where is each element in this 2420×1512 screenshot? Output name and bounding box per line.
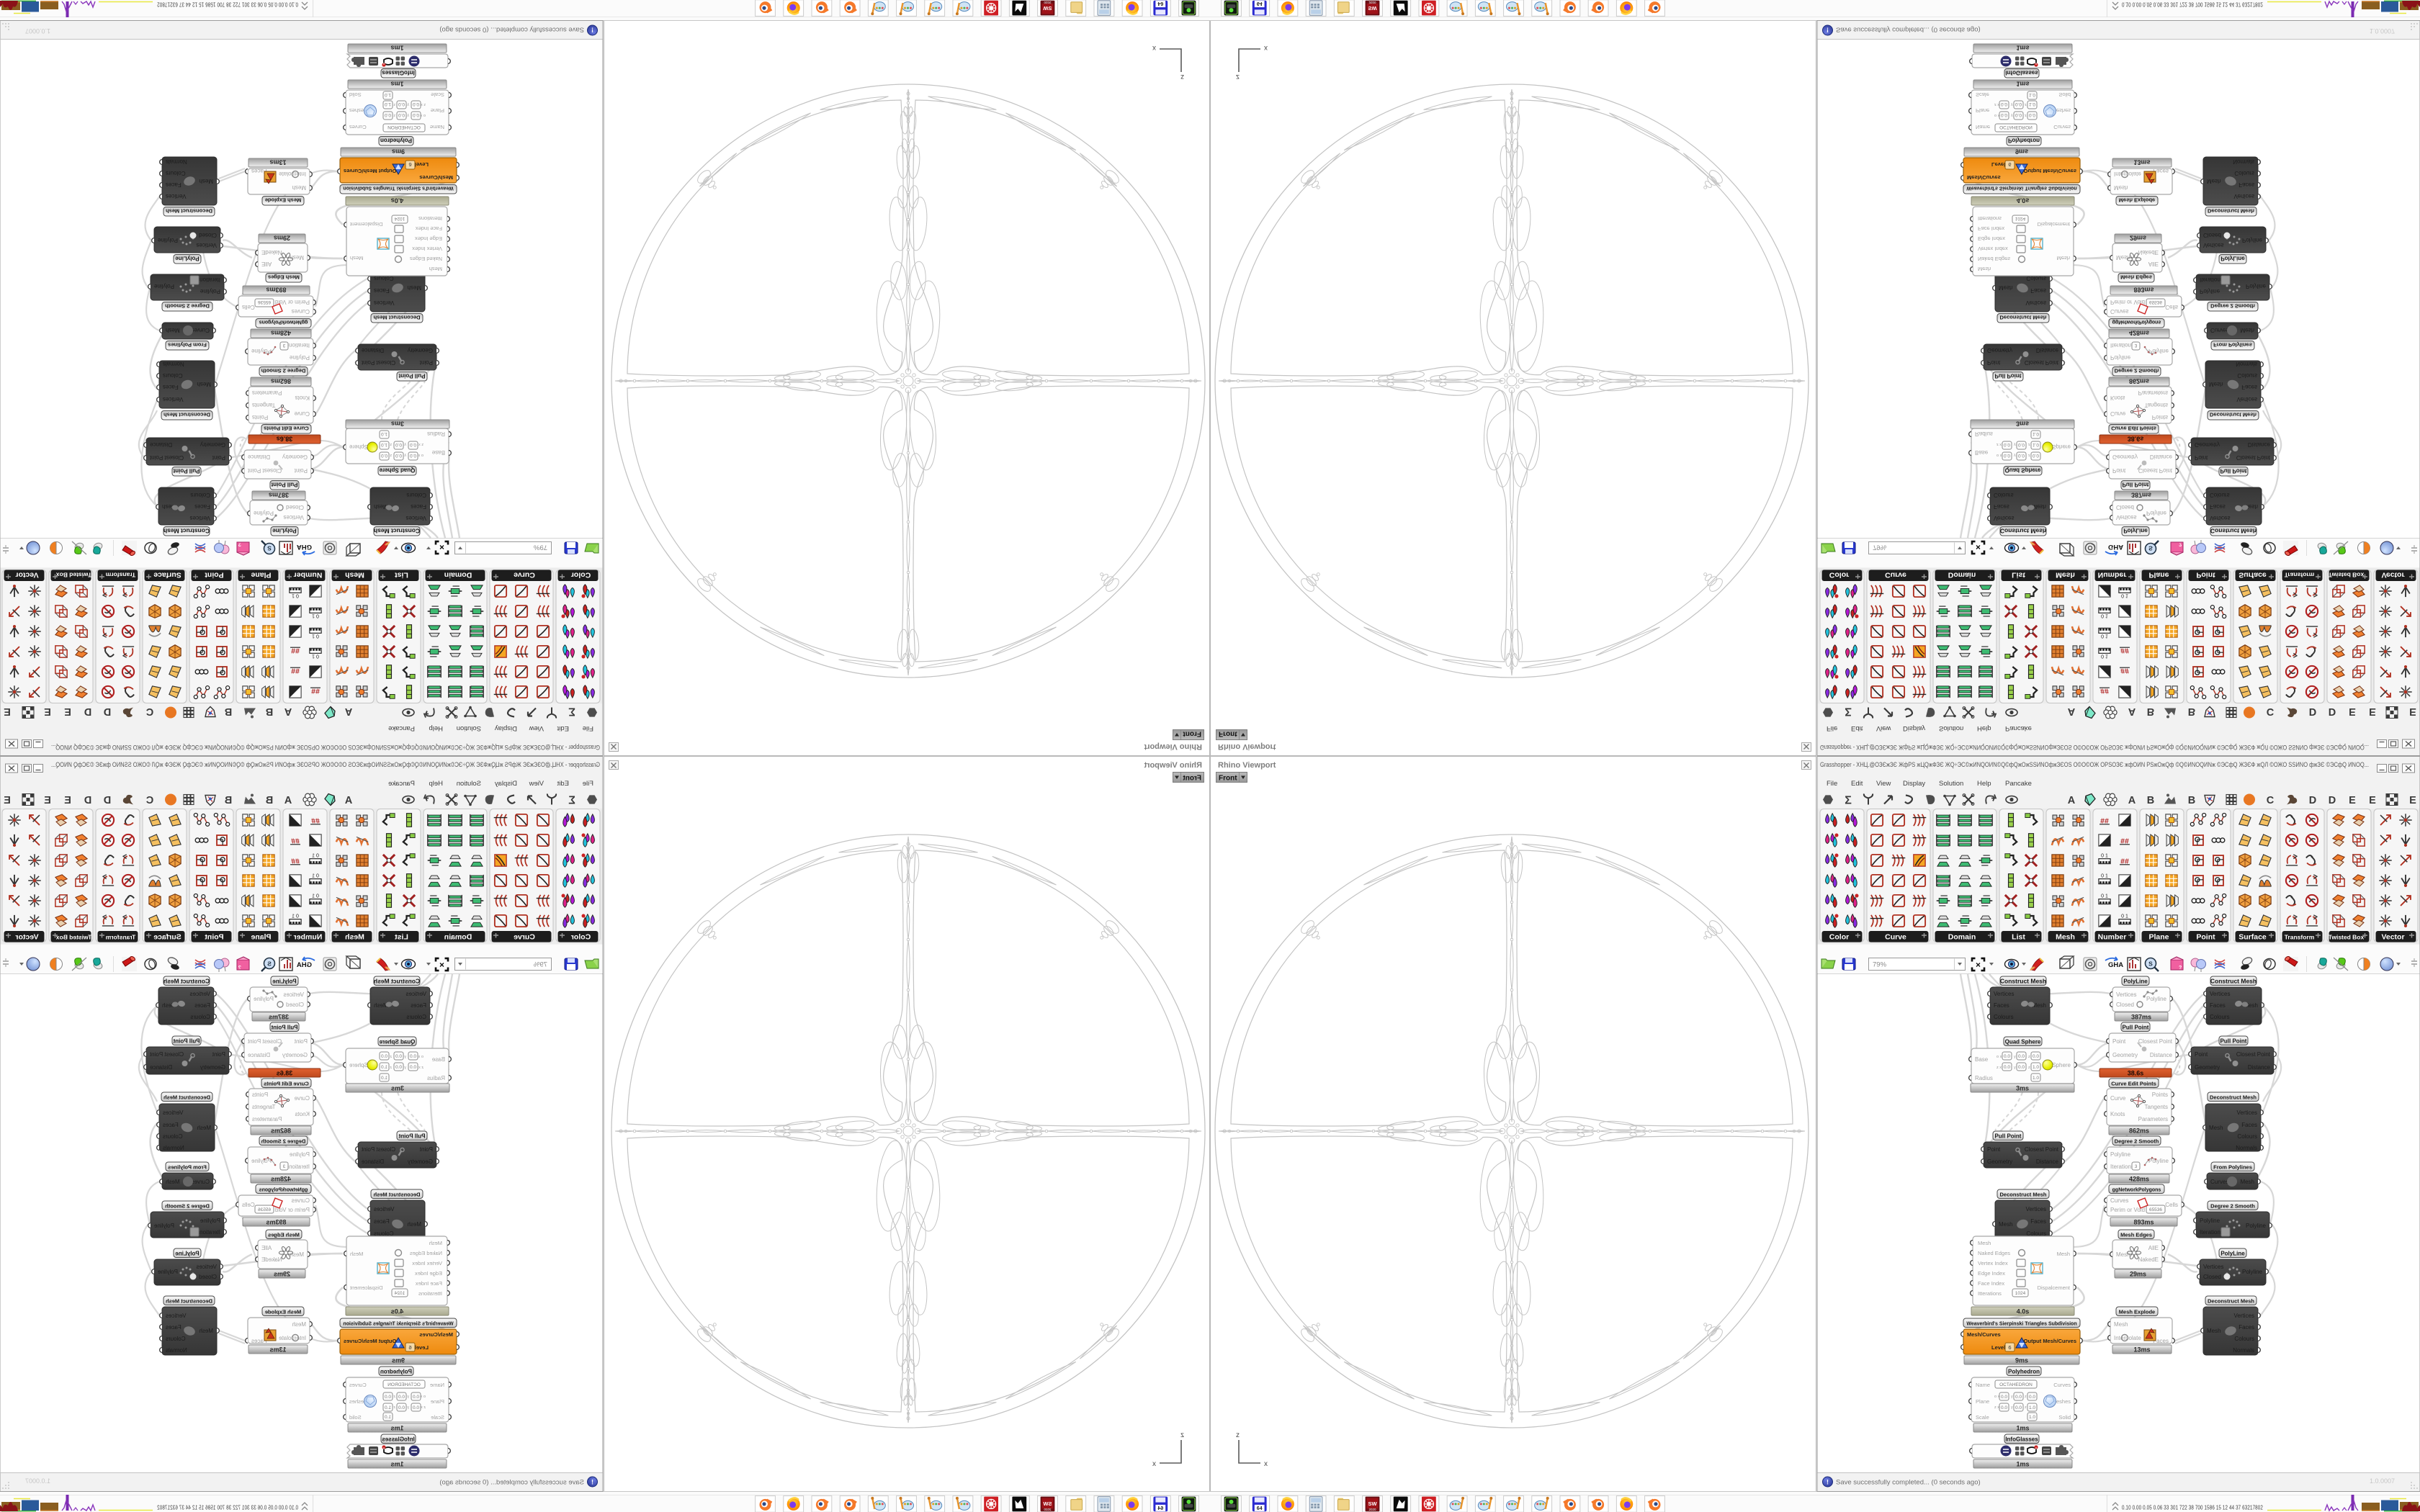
svg-text:Output Mesh/Curves: Output Mesh/Curves bbox=[2024, 1338, 2076, 1344]
svg-text:z: z bbox=[2025, 1395, 2027, 1399]
svg-text:Mesh Explode: Mesh Explode bbox=[2119, 1309, 2155, 1315]
svg-text:Front: Front bbox=[1219, 775, 1237, 783]
svg-text:C: C bbox=[2267, 795, 2275, 806]
svg-text:0.0: 0.0 bbox=[2015, 1395, 2022, 1400]
svg-text:E: E bbox=[2369, 795, 2376, 806]
svg-text:Pull Point: Pull Point bbox=[2123, 1025, 2149, 1031]
svg-text:Mesh: Mesh bbox=[2032, 1002, 2046, 1009]
svg-text:PolyLine: PolyLine bbox=[2220, 1251, 2245, 1257]
svg-text:Vertices: Vertices bbox=[2026, 1206, 2046, 1212]
svg-text:29ms: 29ms bbox=[2130, 1271, 2146, 1278]
svg-text:Polyline: Polyline bbox=[2146, 996, 2167, 1002]
svg-text:z: z bbox=[2028, 1055, 2030, 1059]
svg-text:Edge Index: Edge Index bbox=[1978, 1270, 2005, 1277]
svg-text:Vertices: Vertices bbox=[2237, 1110, 2257, 1116]
svg-text:z: z bbox=[1236, 1431, 1240, 1439]
svg-text:Vertices: Vertices bbox=[2203, 1264, 2223, 1270]
svg-text:Curve: Curve bbox=[2110, 1095, 2126, 1102]
svg-text:Curves: Curves bbox=[2110, 1197, 2128, 1204]
svg-text:Colours: Colours bbox=[2237, 1133, 2257, 1140]
svg-text:Display: Display bbox=[1903, 780, 1925, 788]
svg-text:79%: 79% bbox=[1873, 961, 1887, 969]
svg-text:Vertex Index: Vertex Index bbox=[1978, 1260, 2008, 1266]
svg-text:Mesh: Mesh bbox=[2240, 1179, 2254, 1185]
svg-text:B: B bbox=[2188, 795, 2195, 806]
svg-text:64: 64 bbox=[1257, 1506, 1263, 1511]
svg-text:Polyline: Polyline bbox=[2110, 1151, 2131, 1158]
svg-text:Level: Level bbox=[1991, 1344, 2005, 1351]
svg-text:PolyLine: PolyLine bbox=[2123, 978, 2148, 985]
svg-text:Mesh: Mesh bbox=[2207, 1328, 2221, 1334]
svg-text:Radius: Radius bbox=[1975, 1075, 1993, 1081]
svg-text:Pull Point: Pull Point bbox=[2220, 1038, 2247, 1045]
svg-text:Normals: Normals bbox=[2233, 1347, 2254, 1354]
svg-text:Closest Point: Closest Point bbox=[2025, 1146, 2059, 1153]
svg-text:Closest Point: Closest Point bbox=[2138, 1038, 2173, 1045]
svg-text:List: List bbox=[2012, 933, 2025, 942]
svg-text:o x: o x bbox=[1994, 1395, 2000, 1399]
svg-text:y: y bbox=[2011, 1405, 2013, 1410]
svg-text:Faces: Faces bbox=[2030, 1218, 2046, 1225]
svg-text:Construct Mesh: Construct Mesh bbox=[2000, 978, 2046, 985]
svg-text:Construct Mesh: Construct Mesh bbox=[2210, 978, 2257, 985]
svg-text:Vertices: Vertices bbox=[1994, 991, 2014, 997]
svg-text:Edit: Edit bbox=[1851, 780, 1863, 788]
svg-text:o x: o x bbox=[1996, 1055, 2002, 1059]
svg-text:Distance: Distance bbox=[2248, 1064, 2271, 1071]
svg-text:Mesh: Mesh bbox=[1999, 1221, 2013, 1228]
svg-text:D: D bbox=[2329, 795, 2336, 806]
svg-text:0.0: 0.0 bbox=[2018, 1054, 2025, 1059]
svg-text:Point: Point bbox=[2196, 933, 2215, 942]
svg-text:Degree 2 Smooth: Degree 2 Smooth bbox=[2115, 1138, 2159, 1145]
svg-text:Closed: Closed bbox=[2203, 1274, 2221, 1280]
svg-text:Transform: Transform bbox=[2285, 934, 2315, 941]
svg-text:Colours: Colours bbox=[1994, 1014, 2014, 1020]
svg-text:Curve: Curve bbox=[1885, 933, 1906, 942]
svg-text:Polyhedron: Polyhedron bbox=[2008, 1369, 2040, 1375]
svg-text:Deconstruct Mesh: Deconstruct Mesh bbox=[2210, 1094, 2257, 1101]
svg-text:Distance: Distance bbox=[2150, 1052, 2173, 1058]
svg-text:Deconstruct Mesh: Deconstruct Mesh bbox=[2208, 1298, 2254, 1305]
svg-text:0.0: 0.0 bbox=[2029, 1395, 2035, 1400]
svg-text:Save successfully completed...: Save successfully completed... (0 second… bbox=[1836, 1479, 1981, 1487]
svg-text:Mesh: Mesh bbox=[1978, 1240, 1991, 1246]
svg-text:A: A bbox=[2128, 795, 2136, 806]
svg-text:ggNetworkPolygons: ggNetworkPolygons bbox=[2112, 1188, 2161, 1193]
svg-text:y: y bbox=[2014, 1055, 2016, 1059]
svg-text:Sphere: Sphere bbox=[2052, 1062, 2071, 1068]
svg-text:Solid: Solid bbox=[2058, 1414, 2071, 1421]
svg-text:z: z bbox=[2028, 1066, 2030, 1070]
svg-text:1.0: 1.0 bbox=[2029, 1405, 2035, 1410]
svg-text:9ms: 9ms bbox=[2015, 1357, 2028, 1364]
svg-text:Curves: Curves bbox=[2053, 1382, 2071, 1388]
svg-text:Polyline: Polyline bbox=[2242, 1269, 2263, 1275]
svg-text:Weaverbird's Sierpinski Triang: Weaverbird's Sierpinski Triangles Subdiv… bbox=[1966, 1322, 2076, 1327]
svg-text:0 1: 0 1 bbox=[2121, 914, 2128, 919]
svg-text:Normals: Normals bbox=[2236, 1145, 2257, 1151]
svg-text:E: E bbox=[2409, 795, 2416, 806]
svg-text:Point: Point bbox=[2112, 1038, 2126, 1045]
svg-text:Perim or Void: Perim or Void bbox=[2110, 1207, 2145, 1213]
svg-text:Domain: Domain bbox=[1948, 933, 1976, 942]
svg-text:0 1: 0 1 bbox=[2101, 853, 2108, 858]
svg-text:Solution: Solution bbox=[1939, 780, 1963, 788]
svg-text:Naked Edges: Naked Edges bbox=[1978, 1250, 2010, 1256]
svg-text:Vertices: Vertices bbox=[2116, 991, 2136, 998]
svg-text:Iterations: Iterations bbox=[2200, 1229, 2223, 1236]
svg-text:Deconstruct Mesh: Deconstruct Mesh bbox=[1999, 1192, 2046, 1198]
svg-text:65536: 65536 bbox=[2149, 1207, 2162, 1212]
svg-text:0.10 0.00 0.05 0.06 33 301: 0.10 0.00 0.05 0.06 33 301 722 38 700 15… bbox=[2122, 1505, 2263, 1511]
svg-text:E: E bbox=[2349, 795, 2356, 806]
svg-text:Point: Point bbox=[1987, 1146, 2001, 1153]
svg-text:Twisted Box: Twisted Box bbox=[2329, 934, 2365, 941]
svg-text:Point: Point bbox=[2195, 1051, 2208, 1058]
svg-text:Degree 2 Smooth: Degree 2 Smooth bbox=[2210, 1203, 2255, 1210]
svg-text:From Polylines: From Polylines bbox=[2213, 1164, 2252, 1171]
svg-text:View: View bbox=[1876, 780, 1891, 788]
svg-text:Mesh: Mesh bbox=[2209, 1125, 2223, 1131]
svg-text:Faces: Faces bbox=[1994, 1002, 2009, 1009]
svg-text:x: x bbox=[1264, 1460, 1268, 1468]
svg-text:Polyline: Polyline bbox=[2200, 1218, 2220, 1224]
svg-text:0.0: 0.0 bbox=[2001, 1405, 2007, 1410]
svg-text:6: 6 bbox=[2008, 1344, 2011, 1351]
svg-text:Grasshopper - XHЦ.@ОЗЄжЗЄ ЖфРЅ: Grasshopper - XHЦ.@ОЗЄжЗЄ ЖфРЅ жЦQжФЗЄ Ж… bbox=[1820, 761, 2369, 768]
svg-text:0.0: 0.0 bbox=[2004, 1065, 2010, 1070]
svg-text:NakedE: NakedE bbox=[2138, 1256, 2159, 1263]
svg-text:B: B bbox=[2147, 795, 2154, 806]
svg-text:Colours: Colours bbox=[2234, 1336, 2254, 1342]
svg-text:Geometry: Geometry bbox=[2195, 1064, 2220, 1071]
svg-text:428ms: 428ms bbox=[2129, 1176, 2149, 1183]
svg-text:0.0: 0.0 bbox=[2015, 1405, 2022, 1410]
svg-text:0 1: 0 1 bbox=[2101, 894, 2108, 899]
svg-text:y: y bbox=[2014, 1066, 2016, 1070]
svg-text:SW: SW bbox=[1368, 1500, 1377, 1507]
svg-text:1.0: 1.0 bbox=[2033, 1065, 2039, 1070]
svg-text:1ms: 1ms bbox=[2016, 1425, 2029, 1432]
svg-text:387ms: 387ms bbox=[2131, 1014, 2151, 1021]
svg-text:Base: Base bbox=[1975, 1056, 1989, 1063]
svg-text:AllE: AllE bbox=[2148, 1245, 2159, 1251]
svg-text:3: 3 bbox=[2135, 1164, 2138, 1169]
svg-text:OCTAHEDRON: OCTAHEDRON bbox=[1999, 1382, 2033, 1387]
svg-text:GHA: GHA bbox=[2108, 961, 2123, 969]
svg-text:0.0: 0.0 bbox=[2033, 1054, 2039, 1059]
svg-text:1.0: 1.0 bbox=[2029, 1415, 2035, 1420]
svg-text:Vertices: Vertices bbox=[2234, 1313, 2254, 1319]
svg-text:?: ? bbox=[2179, 966, 2182, 971]
svg-text:Closest Point: Closest Point bbox=[2236, 1051, 2271, 1058]
svg-text:Faces: Faces bbox=[2238, 1324, 2254, 1331]
svg-text:0.0: 0.0 bbox=[2001, 1395, 2007, 1400]
svg-text:Cells: Cells bbox=[2165, 1202, 2178, 1208]
svg-text:Scale: Scale bbox=[1976, 1414, 1989, 1421]
svg-text:z x: z x bbox=[1994, 1405, 1999, 1410]
svg-text:Number: Number bbox=[2098, 933, 2127, 942]
svg-text:2020: 2020 bbox=[1368, 1508, 1376, 1511]
svg-text:Pull Point: Pull Point bbox=[1995, 1133, 2022, 1140]
svg-text:Mesh: Mesh bbox=[2056, 933, 2075, 942]
svg-text:Curves: Curves bbox=[2210, 1179, 2228, 1185]
svg-text:893ms: 893ms bbox=[2133, 1219, 2154, 1226]
svg-text:13ms: 13ms bbox=[2133, 1346, 2150, 1354]
svg-text:Color: Color bbox=[1829, 933, 1849, 942]
svg-text:!: ! bbox=[1827, 1479, 1829, 1486]
svg-text:Tangents: Tangents bbox=[2145, 1104, 2168, 1110]
svg-text:0.0: 0.0 bbox=[2018, 1065, 2025, 1070]
svg-text:4.0s: 4.0s bbox=[2017, 1308, 2030, 1315]
svg-text:A: A bbox=[2068, 795, 2076, 806]
svg-text:z: z bbox=[2025, 1405, 2027, 1410]
svg-text:Points: Points bbox=[2152, 1092, 2168, 1098]
svg-text:Itterations: Itterations bbox=[1978, 1290, 2002, 1297]
svg-text:Curve Edit Points: Curve Edit Points bbox=[2111, 1081, 2156, 1087]
svg-text:1.0.0007: 1.0.0007 bbox=[2370, 1477, 2395, 1485]
svg-text:Plane: Plane bbox=[2148, 933, 2169, 942]
svg-text:Vertices: Vertices bbox=[2210, 991, 2230, 997]
svg-text:Geometry: Geometry bbox=[2112, 1052, 2138, 1058]
svg-text:Distance: Distance bbox=[2036, 1158, 2059, 1165]
svg-text:Plane: Plane bbox=[1976, 1398, 1989, 1405]
svg-text:Quad Sphere: Quad Sphere bbox=[2005, 1039, 2041, 1045]
svg-text:Name: Name bbox=[1976, 1382, 1990, 1388]
svg-text:Faces: Faces bbox=[2241, 1122, 2257, 1128]
svg-text:Help: Help bbox=[1977, 780, 1991, 788]
svg-text:0 1: 0 1 bbox=[2101, 873, 2108, 878]
svg-text:Σ: Σ bbox=[1845, 795, 1852, 807]
svg-text:S: S bbox=[2148, 960, 2153, 968]
svg-text:Pancake: Pancake bbox=[2005, 780, 2032, 788]
svg-text:Polyline: Polyline bbox=[2246, 1223, 2267, 1229]
svg-text:y: y bbox=[2011, 1395, 2013, 1399]
svg-text:Face Index: Face Index bbox=[1978, 1280, 2004, 1287]
svg-text:Colours: Colours bbox=[2210, 1014, 2230, 1020]
svg-text:Mesh: Mesh bbox=[2057, 1251, 2070, 1257]
svg-text:1.0: 1.0 bbox=[2033, 1076, 2039, 1081]
svg-text:1ms: 1ms bbox=[2016, 1461, 2029, 1468]
svg-text:0.0: 0.0 bbox=[2004, 1054, 2010, 1059]
svg-text:Rhino Viewport: Rhino Viewport bbox=[1218, 761, 1276, 770]
svg-text:Iterations: Iterations bbox=[2110, 1164, 2134, 1170]
svg-text:Geometry: Geometry bbox=[1987, 1158, 2012, 1165]
svg-text:Vector: Vector bbox=[2381, 933, 2404, 942]
svg-text:Parameters: Parameters bbox=[2138, 1116, 2168, 1122]
svg-text:Knots: Knots bbox=[2110, 1111, 2125, 1117]
svg-text:Mesh Edges: Mesh Edges bbox=[2120, 1232, 2152, 1238]
svg-text:3ms: 3ms bbox=[2016, 1085, 2029, 1092]
svg-text:InfoGlasses: InfoGlasses bbox=[2005, 1436, 2038, 1443]
svg-text:Mesh: Mesh bbox=[2114, 1321, 2128, 1328]
svg-text:D: D bbox=[2309, 795, 2316, 806]
svg-text:Faces: Faces bbox=[2210, 1002, 2226, 1009]
svg-text:Dispalcement: Dispalcement bbox=[2038, 1284, 2071, 1291]
svg-text:Surface: Surface bbox=[2238, 933, 2267, 942]
svg-text:38.6s: 38.6s bbox=[2128, 1070, 2144, 1077]
svg-text:Closed: Closed bbox=[2116, 1002, 2134, 1008]
svg-text:862ms: 862ms bbox=[2129, 1128, 2149, 1135]
svg-text:1024: 1024 bbox=[2015, 1291, 2026, 1296]
svg-text:Mesh/Curves: Mesh/Curves bbox=[1967, 1331, 2001, 1338]
svg-text:z x: z x bbox=[1996, 1066, 2002, 1070]
svg-text:File: File bbox=[1827, 780, 1837, 788]
